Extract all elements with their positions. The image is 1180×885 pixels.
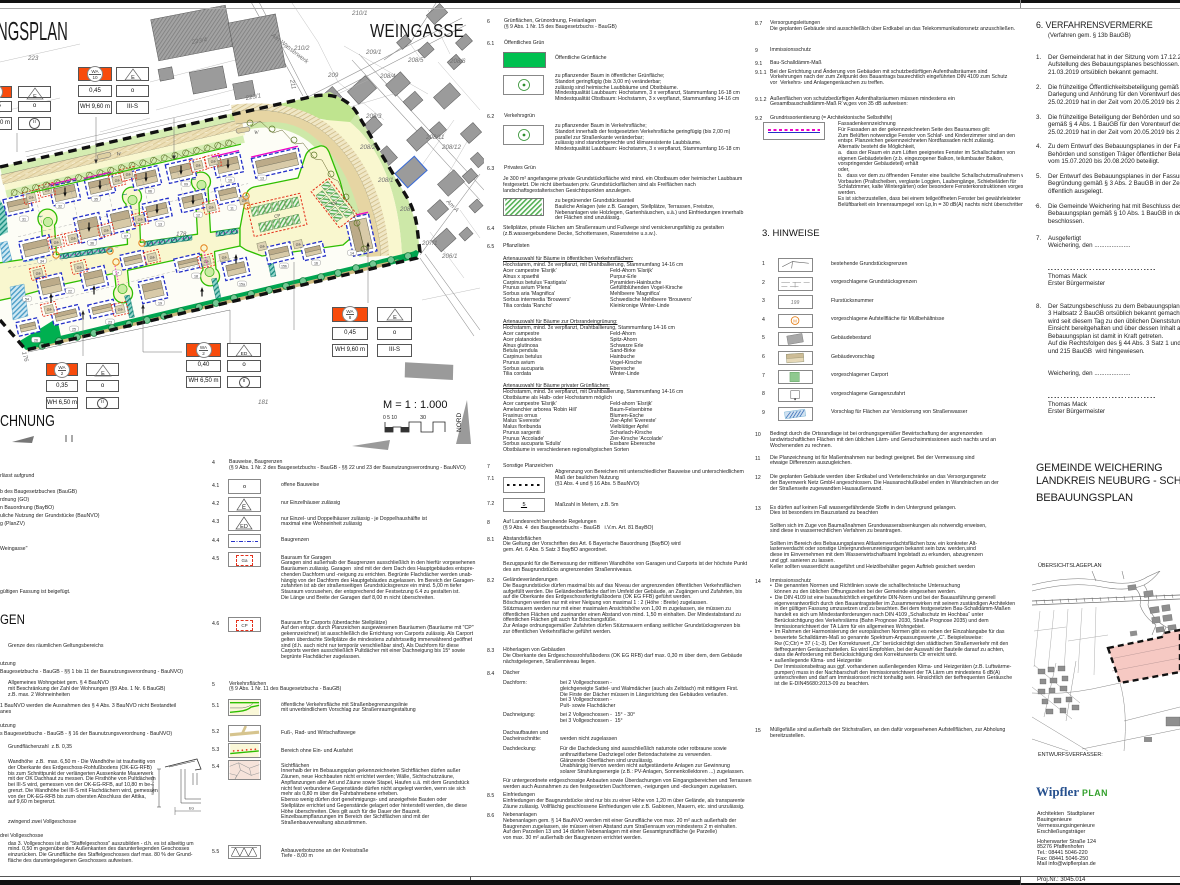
svg-text:E: E [33,94,37,100]
svg-text:36: 36 [90,241,94,245]
svg-text:13: 13 [158,222,162,226]
svg-text:17: 17 [115,271,119,275]
svg-text:209/1: 209/1 [365,49,381,56]
svg-text:11: 11 [230,206,234,210]
svg-text:09: 09 [184,182,188,186]
svg-text:M = 1 : 1.000: M = 1 : 1.000 [383,399,448,411]
svg-text:0 5 10: 0 5 10 [383,415,397,421]
svg-text:208/2: 208/2 [359,144,376,151]
svg-text:CP: CP [331,201,338,206]
svg-text:223: 223 [27,55,39,62]
svg-text:WEINGASSE: WEINGASSE [370,21,464,42]
svg-text:32: 32 [58,204,62,208]
svg-text:22: 22 [68,289,72,293]
svg-text:54: 54 [25,297,29,301]
svg-text:E: E [393,315,397,321]
svg-text:211: 211 [288,78,297,90]
svg-text:208/5: 208/5 [407,57,424,64]
svg-text:208/12: 208/12 [441,144,461,151]
svg-text:ED: ED [241,351,248,357]
svg-text:207/1: 207/1 [421,240,437,247]
svg-text:209: 209 [327,72,339,79]
svg-text:176: 176 [20,351,30,363]
svg-text:14: 14 [350,251,354,255]
svg-text:208/6: 208/6 [449,58,466,65]
svg-text:178: 178 [176,231,187,238]
svg-text:12: 12 [196,213,200,217]
svg-text:26: 26 [34,338,38,342]
svg-text:NORD: NORD [456,413,463,432]
svg-text:210/1: 210/1 [351,10,367,17]
svg-text:W: W [116,152,121,158]
svg-text:208/11: 208/11 [425,134,444,141]
svg-text:07: 07 [124,234,128,238]
svg-text:206/1: 206/1 [441,253,457,260]
svg-text:23: 23 [108,320,112,324]
svg-text:EG: EG [189,807,194,811]
svg-text:E: E [131,75,135,81]
svg-text:06: 06 [148,189,152,193]
svg-text:181: 181 [258,399,268,406]
svg-text:W: W [254,130,259,136]
svg-text:223/1: 223/1 [244,92,261,102]
svg-text:30: 30 [420,415,426,421]
svg-text:ED: ED [240,524,248,530]
svg-text:15a: 15a [239,282,245,286]
svg-text:M: M [793,318,797,323]
svg-text:34: 34 [40,259,44,263]
svg-text:Wandhöhe: Wandhöhe [150,775,155,795]
svg-text:16: 16 [314,261,318,265]
svg-text:13: 13 [260,176,264,180]
svg-text:199: 199 [791,300,800,306]
svg-text:208/3: 208/3 [365,113,382,120]
svg-text:E: E [242,505,246,511]
svg-text:NGSPLAN: NGSPLAN [0,18,68,46]
svg-text:35: 35 [94,197,98,201]
svg-text:208/1: 208/1 [377,177,393,184]
svg-text:25: 25 [72,327,76,331]
svg-text:E: E [101,371,105,377]
svg-text:19: 19 [158,301,162,305]
svg-text:31: 31 [22,217,26,221]
svg-text:15b: 15b [281,264,287,268]
svg-text:18: 18 [194,274,198,278]
svg-text:208/4: 208/4 [379,73,396,80]
svg-text:208: 208 [399,206,411,213]
svg-text:10: 10 [228,178,232,182]
